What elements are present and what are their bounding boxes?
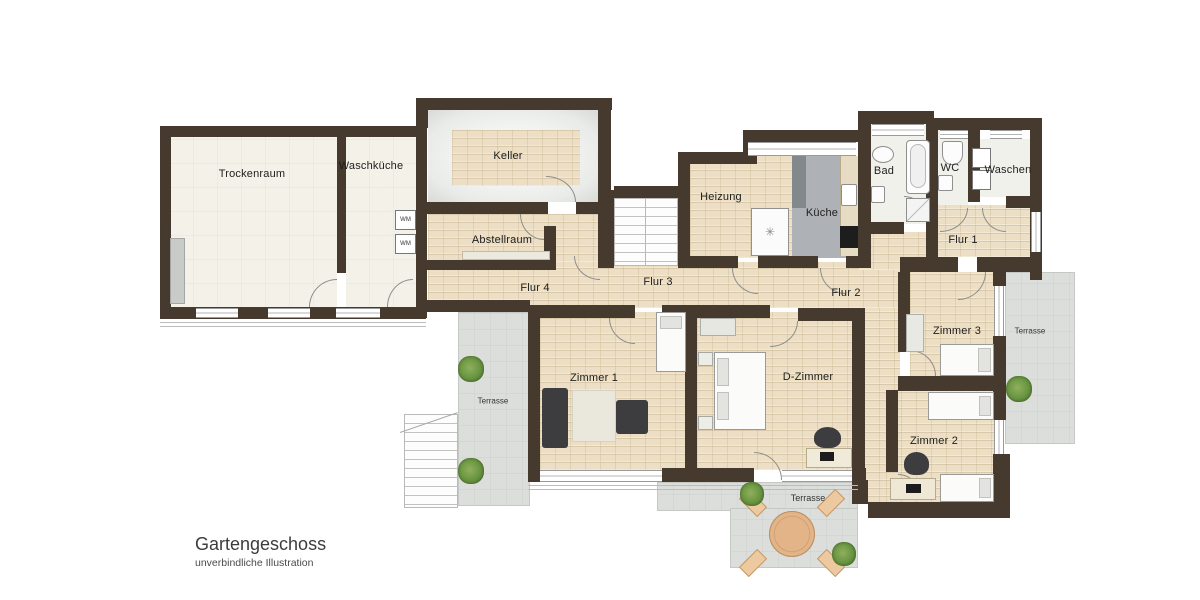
room-label-kueche: Küche xyxy=(806,207,838,219)
wall-keller-top xyxy=(424,98,612,110)
kitchen-stove-icon xyxy=(840,226,858,248)
window-north-band xyxy=(748,142,856,156)
wall-heizung-left xyxy=(678,152,690,268)
wall-zimmer3-zimmer2 xyxy=(898,376,1000,391)
wall-flur4-south xyxy=(426,300,530,312)
wall-bad-top xyxy=(858,111,934,124)
wall-dzimmer-top-l xyxy=(697,305,770,318)
room-label-keller: Keller xyxy=(493,150,522,162)
zimmer1-sofa xyxy=(542,388,568,448)
dzimmer-pillow xyxy=(717,392,729,420)
wall-zimmer2-bottom xyxy=(868,502,1010,518)
page-subtitle: unverbindliche Illustration xyxy=(195,557,313,569)
wall-bad-bottom xyxy=(858,222,904,234)
kitchen-tall-unit xyxy=(792,156,806,208)
wall-zimmer1-left xyxy=(528,305,540,482)
terrace-table xyxy=(769,511,815,557)
bad-sink-icon xyxy=(871,186,885,203)
wall-stairwell-left xyxy=(598,190,614,268)
plant-icon xyxy=(740,482,764,506)
wm-label: WM xyxy=(400,217,411,223)
plant-icon xyxy=(458,356,484,382)
wall xyxy=(993,268,1006,286)
dzimmer-pillow xyxy=(717,358,729,386)
room-label-bad: Bad xyxy=(874,165,894,177)
wall-kueche-bottom-r xyxy=(846,256,871,268)
wall-north xyxy=(743,130,860,142)
shelf-trockenraum xyxy=(170,238,185,304)
plant-icon xyxy=(832,542,856,566)
room-label-flur3: Flur 3 xyxy=(643,276,672,288)
wall-zimmer2-left xyxy=(886,390,898,472)
wall xyxy=(852,480,868,504)
room-label-flur2: Flur 2 xyxy=(831,287,860,299)
floor-plan: WM WM ✳ Trockenraum Waschküche Kel xyxy=(0,0,1200,600)
wall-zimmer3-top-l xyxy=(900,257,958,272)
zimmer3-desk xyxy=(906,314,924,352)
wc-sink-icon xyxy=(938,175,953,191)
room-label-dzimmer: D-Zimmer xyxy=(783,371,833,383)
wall-south-center xyxy=(662,468,754,482)
wall-trockenraum-divider xyxy=(337,136,346,273)
zimmer1-pillow xyxy=(660,316,682,329)
room-label-zimmer2: Zimmer 2 xyxy=(910,435,958,447)
room-label-heizung: Heizung xyxy=(700,191,742,203)
washing-machine-icon: WM xyxy=(395,234,416,254)
wall-dzimmer-top-r xyxy=(798,308,852,321)
window-waschen xyxy=(990,130,1022,139)
zimmer2-chair xyxy=(904,452,929,475)
wall-heizung-top xyxy=(690,152,750,164)
terrasse-right-floor xyxy=(1005,272,1075,444)
terrace-label-right: Terrasse xyxy=(1015,327,1046,336)
wall-dzimmer-right xyxy=(852,308,865,482)
window-zimmer3 xyxy=(994,286,1004,336)
window-wc xyxy=(940,130,968,139)
room-label-flur4: Flur 4 xyxy=(520,282,549,294)
room-label-waschen: Waschen xyxy=(985,164,1032,176)
zimmer2-pillow-bottom xyxy=(979,478,991,498)
trockenraum-floor xyxy=(170,136,337,307)
shelf-abstellraum xyxy=(462,251,550,260)
terrace-label-left: Terrasse xyxy=(478,397,509,406)
wm-label: WM xyxy=(400,241,411,247)
interior-stairs-divider xyxy=(645,198,646,266)
zimmer1-rug xyxy=(572,390,616,442)
room-label-zimmer3: Zimmer 3 xyxy=(933,325,981,337)
wall xyxy=(416,98,428,128)
wall-zimmer1-dzimmer-divider xyxy=(685,305,697,482)
window-bad xyxy=(872,124,924,136)
zimmer1-armchair xyxy=(616,400,648,434)
wall xyxy=(993,454,1010,504)
wall xyxy=(993,336,1006,384)
wall xyxy=(852,468,866,482)
dzimmer-chair xyxy=(814,427,841,448)
zimmer3-pillow xyxy=(978,348,991,372)
dzimmer-wardrobe xyxy=(700,318,736,336)
room-label-wc: WC xyxy=(941,162,960,174)
plant-icon xyxy=(1006,376,1032,402)
wall-abstell-bottom xyxy=(426,260,556,270)
window-dzimmer-south xyxy=(782,470,852,482)
wall xyxy=(160,126,426,137)
dzimmer-nightstand xyxy=(698,352,713,366)
window xyxy=(268,308,310,318)
wall-waschen-bottom xyxy=(1006,196,1042,208)
window-zimmer1-south xyxy=(540,470,662,482)
wall xyxy=(416,126,427,318)
window xyxy=(336,308,380,318)
room-label-zimmer1: Zimmer 1 xyxy=(570,372,618,384)
window-flur1 xyxy=(1031,212,1041,252)
terrace-label-bottom: Terrasse xyxy=(791,493,826,503)
room-label-trockenraum: Trockenraum xyxy=(219,168,286,180)
wall-zimmer1-top-l xyxy=(538,305,635,318)
zimmer2-laptop-icon xyxy=(906,484,921,493)
dzimmer-nightstand xyxy=(698,416,713,430)
room-label-flur1: Flur 1 xyxy=(948,234,977,246)
plant-icon xyxy=(458,458,484,484)
kitchen-sink-icon xyxy=(841,184,857,206)
washing-machine-icon: WM xyxy=(395,210,416,230)
wall-stairwell-top xyxy=(614,186,678,198)
page-title: Gartengeschoss xyxy=(195,534,326,555)
shower-icon xyxy=(906,198,930,222)
room-label-abstellraum: Abstellraum xyxy=(472,234,532,246)
wall-kueche-bottom-l xyxy=(792,256,818,268)
bad-basin-icon xyxy=(872,146,894,163)
boiler-icon: ✳ xyxy=(751,208,789,256)
zimmer2-pillow-top xyxy=(979,396,991,416)
facade-line xyxy=(160,322,426,327)
wall xyxy=(993,384,1006,420)
window xyxy=(196,308,238,318)
facade-line xyxy=(528,485,858,490)
wall xyxy=(1030,252,1042,280)
window-zimmer2 xyxy=(994,420,1004,454)
wall-waschen-right xyxy=(1030,118,1042,208)
wall-keller-bottom xyxy=(426,202,548,214)
dzimmer-laptop-icon xyxy=(820,452,834,461)
bathtub-inner xyxy=(910,144,926,188)
interior-stairs xyxy=(614,198,678,266)
wall-heizung-bottom-r xyxy=(758,256,792,268)
wall-heizung-bottom-l xyxy=(690,256,738,268)
room-label-waschkueche: Waschküche xyxy=(339,160,404,172)
wall-kueche-right xyxy=(858,111,871,257)
